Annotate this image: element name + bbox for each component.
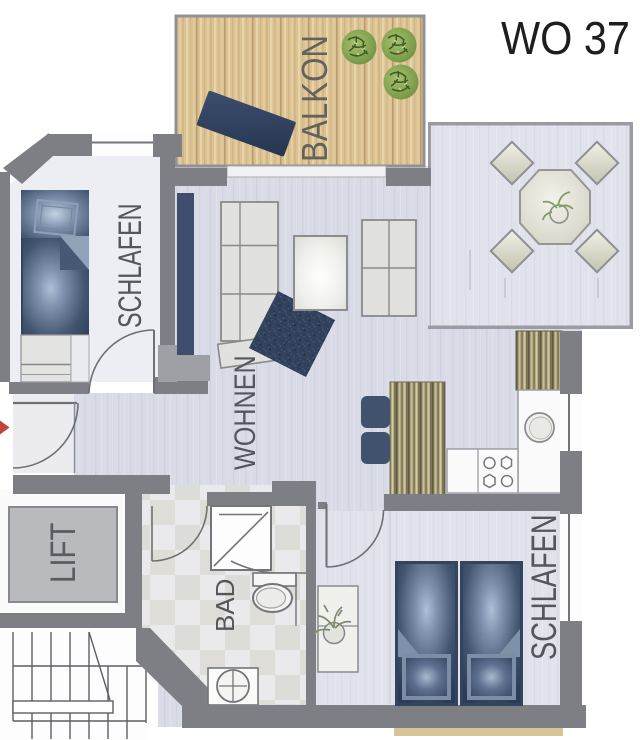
svg-text:BAD: BAD <box>210 579 240 632</box>
svg-text:SCHLAFEN: SCHLAFEN <box>525 514 564 660</box>
svg-text:LIFT: LIFT <box>44 523 83 583</box>
svg-text:WOHNEN: WOHNEN <box>228 355 262 470</box>
svg-text:BALKON: BALKON <box>295 35 336 162</box>
svg-text:SCHLAFEN: SCHLAFEN <box>112 203 147 328</box>
svg-text:WO 37: WO 37 <box>501 12 630 64</box>
